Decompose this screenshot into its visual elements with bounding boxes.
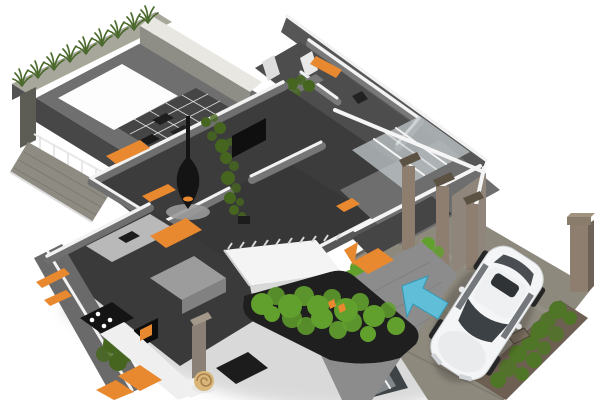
gate-post [567, 213, 595, 292]
fireplace-ember [183, 197, 193, 202]
floor-plan-render [0, 0, 600, 400]
render-canvas [0, 0, 600, 400]
parapet-corner-post [20, 87, 36, 148]
